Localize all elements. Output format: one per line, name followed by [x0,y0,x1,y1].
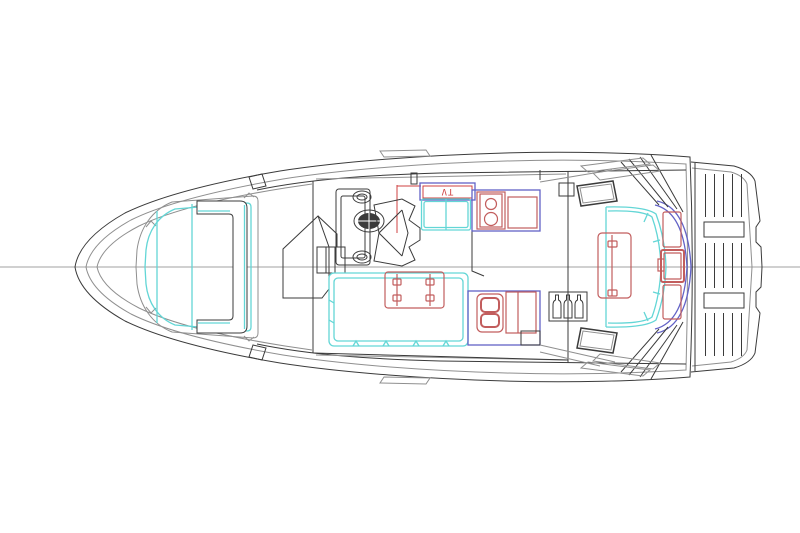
deck-hatch-strip-bottom [380,377,430,384]
burner [486,199,497,210]
bottle [553,295,561,318]
deck-fitting [411,173,417,184]
console-pod-bottom [353,251,371,263]
cockpit-table [598,233,631,298]
counter-lower [506,292,536,333]
tv-label: TV [441,186,454,196]
platform-hatch [704,222,744,237]
console-pod-top [353,191,371,203]
platform-hatch [704,293,744,308]
sink-bowl [481,314,499,327]
windshield-corner-bottom [249,345,266,360]
helm-station [336,189,420,266]
platform-planking [706,174,742,356]
counter-upper [508,197,537,228]
deck-hatch-strip-top [380,150,430,157]
galley-upper: TV [420,183,540,231]
sink-bowl [481,298,499,312]
yacht-deck-plan: TV [0,0,800,533]
side-locker [559,183,574,196]
galley-lower-frame [468,291,540,345]
transom-panel [663,285,681,319]
salon-sofa [329,273,468,346]
windshield-corner-top [249,174,266,189]
galley-lower [468,291,540,345]
bottle [575,295,583,318]
burner [485,213,498,226]
salon-lounge [329,272,468,346]
galley-unit-frame [472,190,540,231]
stove [477,192,505,229]
